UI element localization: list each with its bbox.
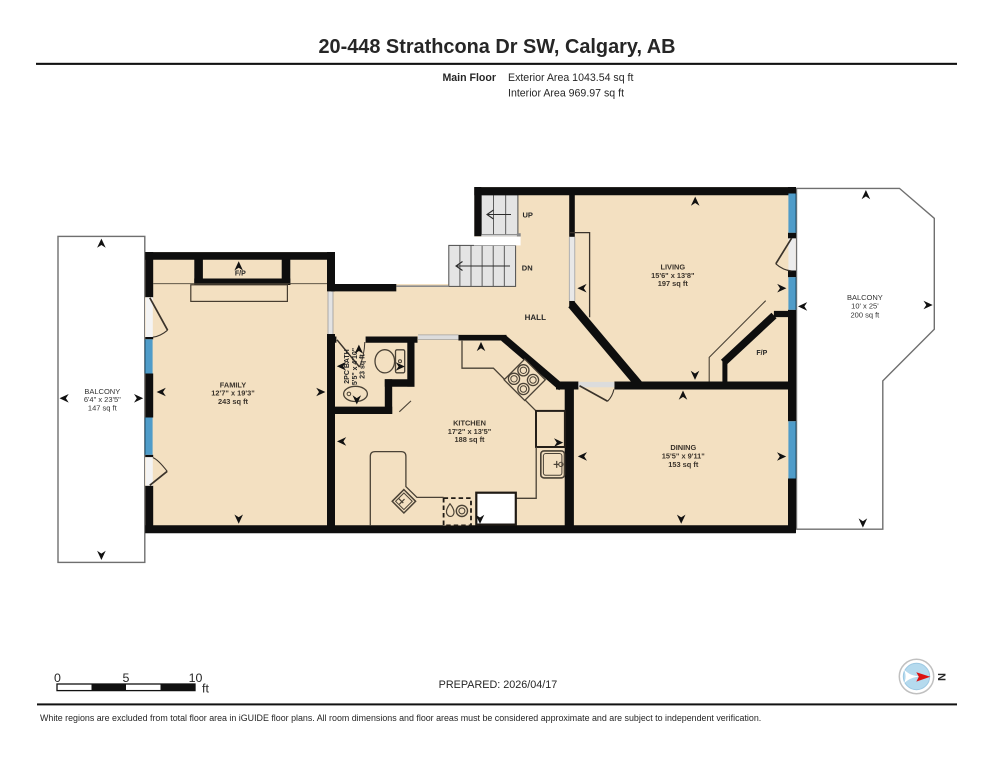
svg-text:PREPARED: 2026/04/17: PREPARED: 2026/04/17 bbox=[439, 679, 558, 691]
svg-text:F/P: F/P bbox=[235, 270, 246, 277]
svg-text:DN: DN bbox=[522, 263, 533, 272]
svg-text:10: 10 bbox=[189, 671, 203, 685]
svg-text:243 sq ft: 243 sq ft bbox=[218, 397, 249, 406]
svg-text:197 sq ft: 197 sq ft bbox=[658, 279, 689, 288]
svg-text:2PC BATH: 2PC BATH bbox=[344, 349, 351, 383]
svg-text:5: 5 bbox=[123, 671, 130, 685]
svg-text:N: N bbox=[935, 673, 947, 681]
svg-text:White regions are excluded fro: White regions are excluded from total fl… bbox=[40, 713, 761, 723]
svg-text:HALL: HALL bbox=[525, 313, 546, 322]
svg-text:153 sq ft: 153 sq ft bbox=[668, 460, 699, 469]
svg-text:23 sq ft: 23 sq ft bbox=[359, 354, 366, 379]
svg-text:188 sq ft: 188 sq ft bbox=[455, 435, 486, 444]
svg-text:Exterior Area 1043.54 sq ft: Exterior Area 1043.54 sq ft bbox=[508, 72, 633, 84]
svg-text:147 sq ft: 147 sq ft bbox=[88, 404, 118, 413]
svg-text:ft: ft bbox=[202, 681, 209, 695]
svg-text:200 sq ft: 200 sq ft bbox=[851, 310, 881, 319]
svg-text:20-448 Strathcona Dr SW, Calga: 20-448 Strathcona Dr SW, Calgary, AB bbox=[318, 36, 675, 58]
svg-text:5'5" x 4'10": 5'5" x 4'10" bbox=[352, 348, 359, 385]
svg-text:UP: UP bbox=[523, 211, 533, 220]
svg-text:Interior Area 969.97 sq ft: Interior Area 969.97 sq ft bbox=[508, 88, 624, 100]
svg-text:10' x 25': 10' x 25' bbox=[851, 302, 879, 311]
svg-text:Main Floor: Main Floor bbox=[442, 72, 496, 84]
svg-text:0: 0 bbox=[54, 671, 61, 685]
svg-text:F/P: F/P bbox=[756, 350, 767, 357]
